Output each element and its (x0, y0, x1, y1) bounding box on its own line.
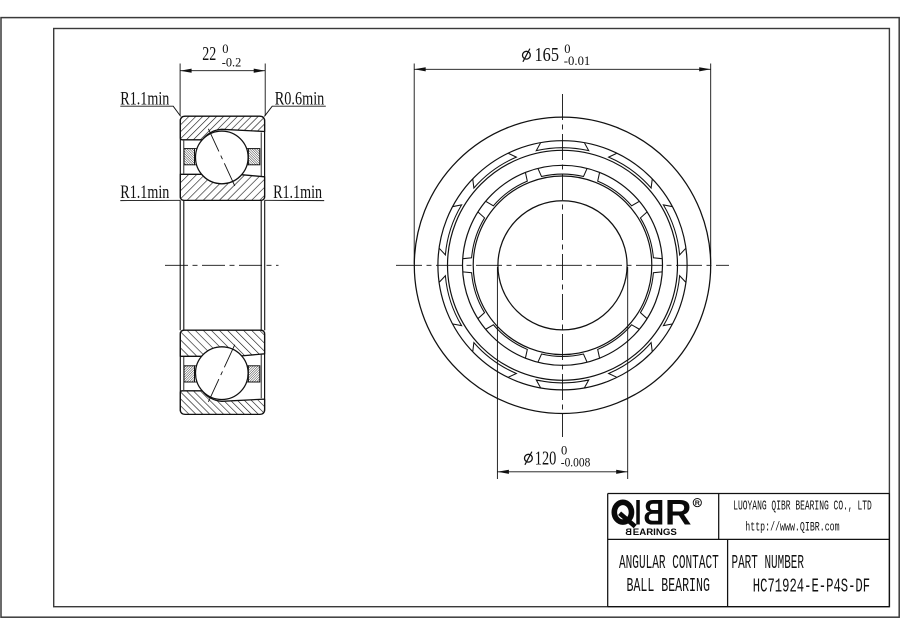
svg-text:ANGULAR CONTACT: ANGULAR CONTACT (619, 552, 719, 574)
svg-text:http://www.QIBR.com: http://www.QIBR.com (745, 520, 839, 535)
svg-text:HC71924-E-P4S-DF: HC71924-E-P4S-DF (753, 576, 870, 598)
svg-text:PART NUMBER: PART NUMBER (732, 552, 805, 574)
svg-text:BALL BEARING: BALL BEARING (627, 575, 710, 597)
svg-text:EARINGS: EARINGS (633, 527, 678, 538)
svg-text:22: 22 (202, 44, 216, 65)
svg-text:LUOYANG QIBR BEARING CO., LTD: LUOYANG QIBR BEARING CO., LTD (733, 500, 872, 515)
svg-text:R1.1min: R1.1min (273, 182, 322, 203)
svg-text:R1.1min: R1.1min (120, 182, 169, 203)
svg-text:0: 0 (222, 42, 228, 56)
svg-text:-0.008: -0.008 (561, 455, 591, 469)
svg-text:R: R (695, 500, 700, 507)
svg-text:165: 165 (535, 45, 560, 66)
svg-text:-0.2: -0.2 (222, 55, 242, 69)
svg-text:B: B (625, 527, 632, 538)
svg-text:-0.01: -0.01 (564, 54, 591, 68)
svg-text:120: 120 (535, 448, 557, 469)
